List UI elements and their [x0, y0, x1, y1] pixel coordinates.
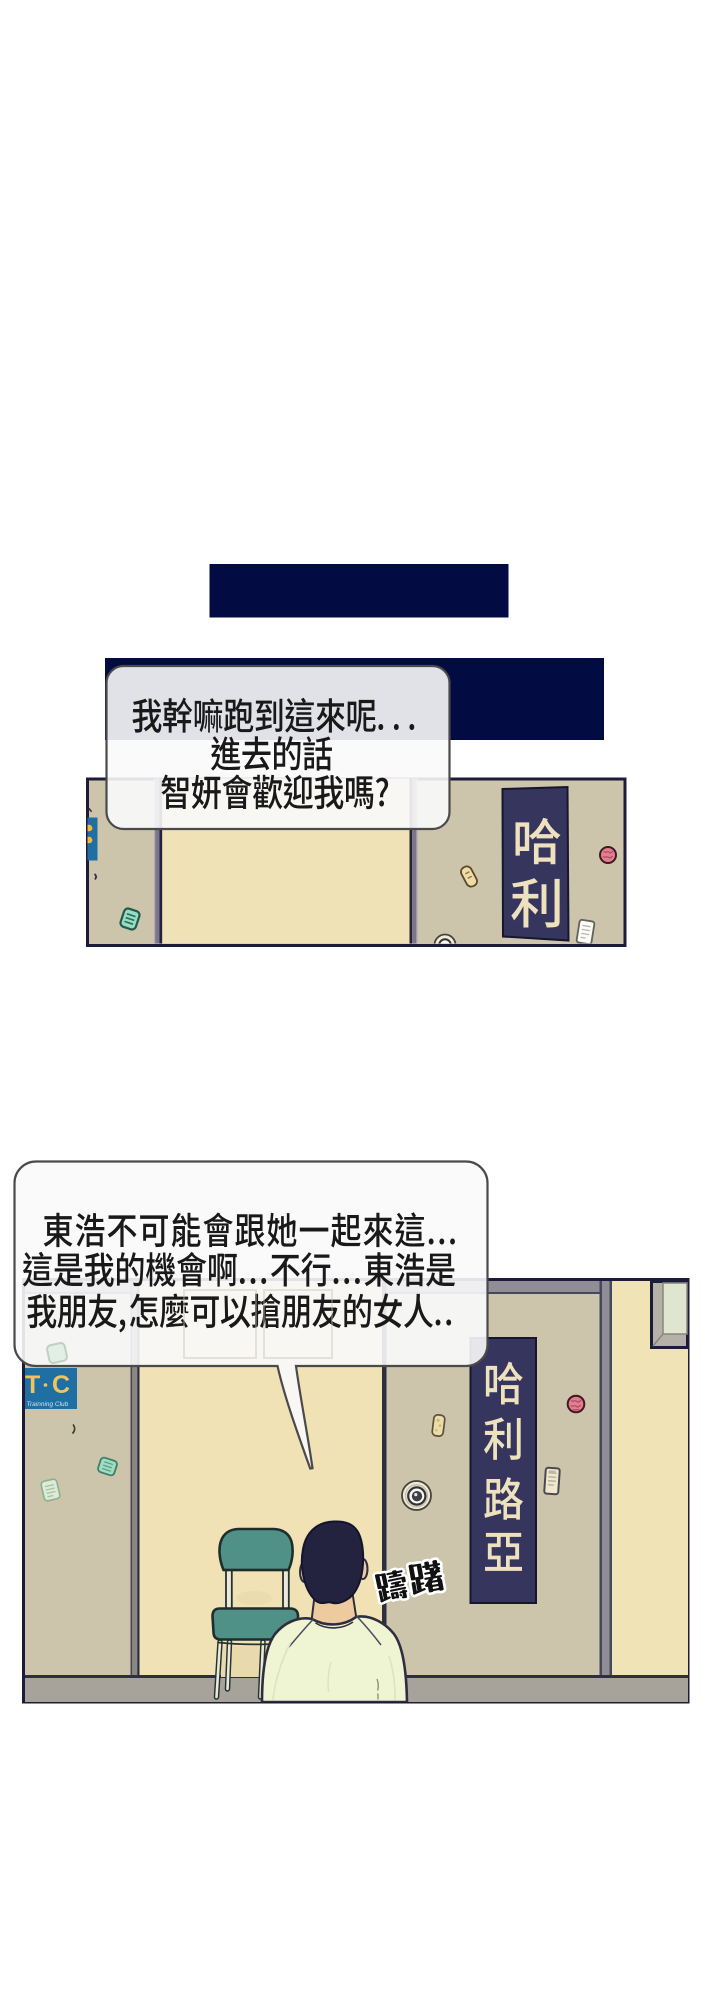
svg-text:C: C: [52, 1371, 70, 1399]
svg-text:T: T: [25, 1371, 40, 1399]
svg-text:Trainning Club: Trainning Club: [27, 1401, 69, 1408]
